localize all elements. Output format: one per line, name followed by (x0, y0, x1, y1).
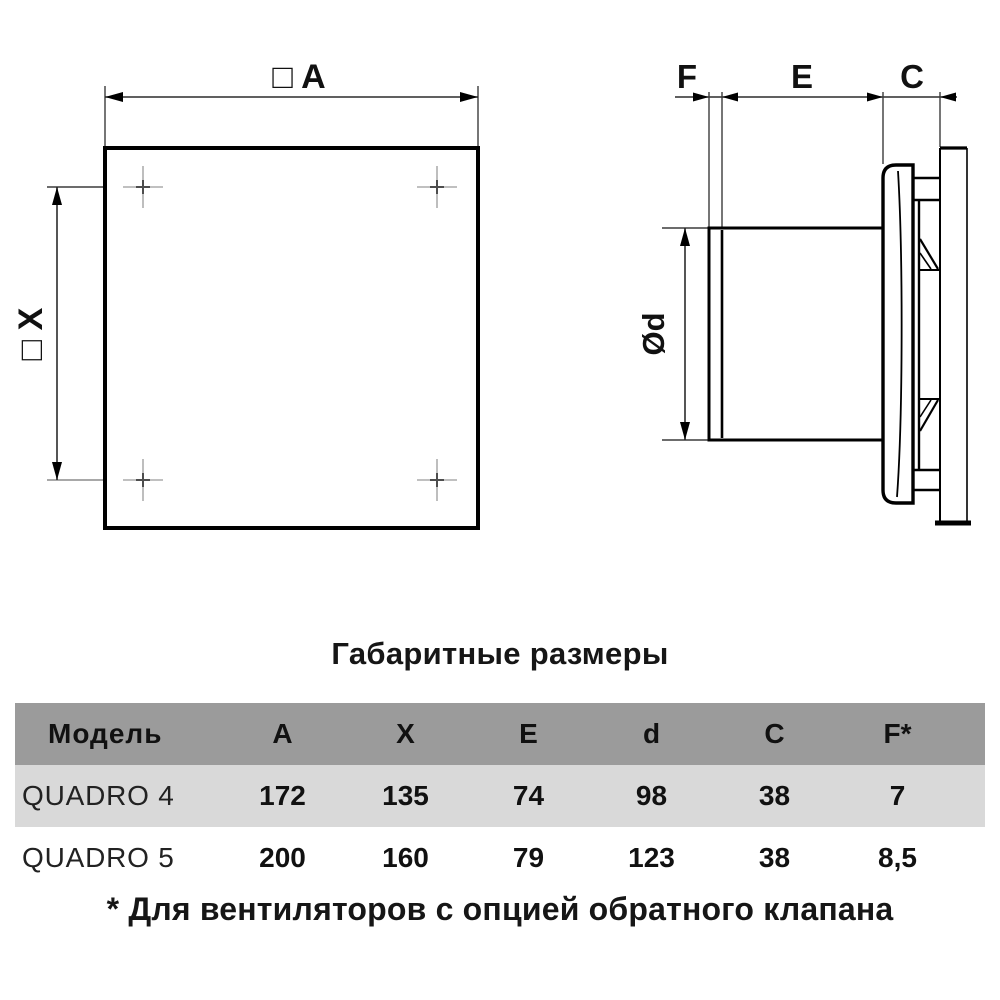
dim-label-e: E (791, 58, 813, 95)
column-header-e: E (467, 718, 590, 750)
column-header-c: C (713, 718, 836, 750)
table-row-quadro-4: QUADRO 4 172 135 74 98 38 7 (15, 765, 985, 827)
duct-tube-outline (709, 228, 883, 440)
section-title: Габаритные размеры (0, 637, 1000, 671)
column-header-model: Модель (15, 718, 221, 750)
dimension-drawing: □ A □ X (0, 0, 1000, 580)
value-e: 74 (467, 780, 590, 812)
value-d: 123 (590, 842, 713, 874)
footnote: * Для вентиляторов с опцией обратного кл… (0, 890, 1000, 928)
value-c: 38 (713, 842, 836, 874)
value-d: 98 (590, 780, 713, 812)
front-panel-profile (883, 165, 913, 503)
value-f: 8,5 (836, 842, 959, 874)
dim-label-d: Ød (636, 312, 671, 355)
dim-x-line (52, 187, 62, 480)
value-x: 160 (344, 842, 467, 874)
value-e: 79 (467, 842, 590, 874)
dimensions-table: Модель A X E d C F* QUADRO 4 172 135 74 … (15, 703, 985, 889)
front-view: □ A □ X (12, 58, 478, 528)
front-panel-outline (105, 148, 478, 528)
dim-label-c: C (900, 58, 924, 95)
spring-clip-bottom (919, 399, 940, 431)
value-f: 7 (836, 780, 959, 812)
model-name: QUADRO 4 (15, 780, 221, 812)
wall-section (935, 148, 971, 523)
model-name: QUADRO 5 (15, 842, 221, 874)
column-header-x: X (344, 718, 467, 750)
side-view: F E C Ød (636, 58, 971, 523)
spring-clip-top (919, 239, 940, 270)
dim-label-f: F (677, 58, 697, 95)
value-a: 200 (221, 842, 344, 874)
column-header-a: A (221, 718, 344, 750)
dim-label-x: □ X (12, 307, 50, 360)
column-header-d: d (590, 718, 713, 750)
table-row-quadro-5: QUADRO 5 200 160 79 123 38 8,5 (15, 827, 985, 889)
value-a: 172 (221, 780, 344, 812)
column-header-f: F* (836, 718, 959, 750)
value-x: 135 (344, 780, 467, 812)
spec-sheet: □ A □ X (0, 0, 1000, 1000)
value-c: 38 (713, 780, 836, 812)
dim-label-a: □ A (272, 58, 325, 96)
table-header-row: Модель A X E d C F* (15, 703, 985, 765)
